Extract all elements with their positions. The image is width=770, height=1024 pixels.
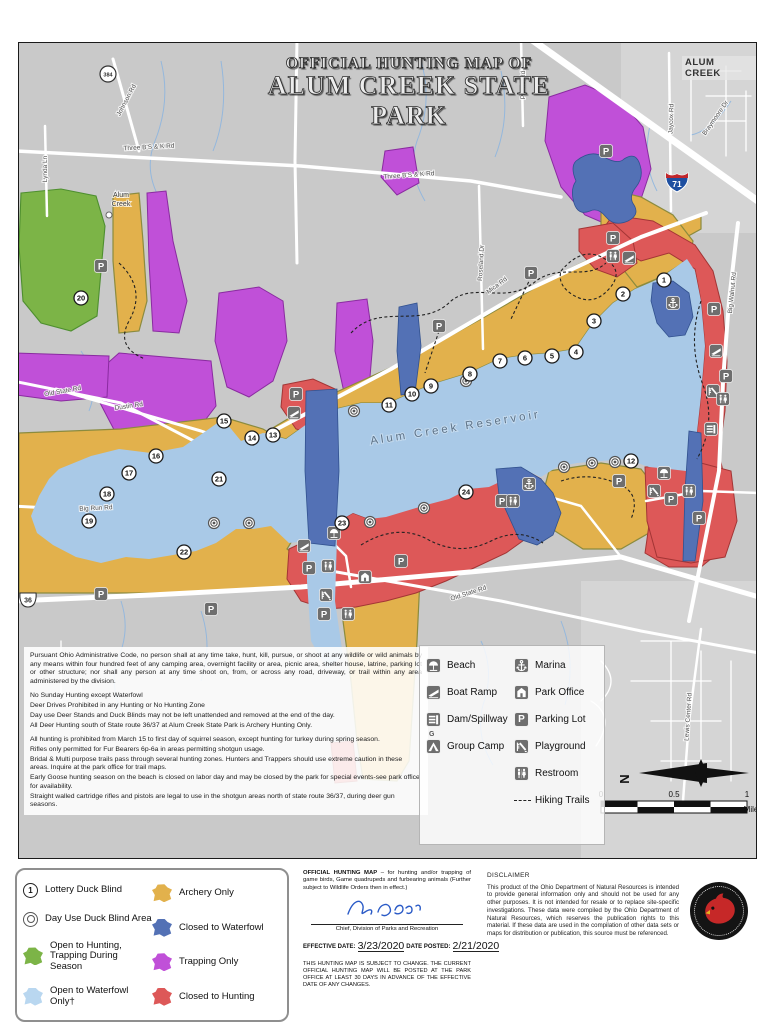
map-legend-item: Hiking Trails xyxy=(514,793,598,808)
signature-ink xyxy=(342,894,432,920)
map-legend-item: GGroup Camp xyxy=(426,739,510,754)
lottery-duck-blind-1: 1 xyxy=(657,273,671,287)
regulation-line: Day use Deer Stands and Duck Blinds may … xyxy=(30,712,422,721)
svg-text:10: 10 xyxy=(408,390,416,399)
regulation-line: All hunting is prohibited from March 15 … xyxy=(30,736,422,745)
odnr-seal xyxy=(684,876,754,946)
day-use-duck-blind xyxy=(244,518,255,529)
zone-legend-label: Lottery Duck Blind xyxy=(45,885,122,896)
restroom-icon xyxy=(607,250,620,263)
playground-icon xyxy=(320,589,333,602)
svg-text:12: 12 xyxy=(627,457,635,466)
town-marker xyxy=(106,212,112,218)
zone-legend-right: Archery OnlyClosed to WaterfowlTrapping … xyxy=(152,876,281,1014)
town-label: Alum xyxy=(113,192,129,199)
zone-legend-label: Archery Only xyxy=(179,888,234,899)
regulation-line: Bridal & Multi purpose trails pass throu… xyxy=(30,756,422,773)
camp-icon: G xyxy=(426,739,441,754)
day-use-duck-blind xyxy=(587,458,598,469)
lottery-duck-blind-23: 23 xyxy=(335,516,349,530)
lottery-duck-blind-18: 18 xyxy=(100,487,114,501)
map-legend-label: Group Camp xyxy=(447,741,504,752)
dam-icon xyxy=(426,712,441,727)
marina-icon xyxy=(514,658,529,673)
north-letter: N xyxy=(617,774,632,783)
zone-legend-label: Closed to Hunting xyxy=(179,992,255,1003)
lottery-duck-blind-11: 11 xyxy=(382,398,396,412)
page: Johnson RdThree B'S & K RdThree B'S & K … xyxy=(0,0,770,1024)
date-row: EFFECTIVE DATE: 3/23/2020 DATE POSTED: 2… xyxy=(303,941,471,952)
lottery-blind-icon: 1 xyxy=(23,883,38,898)
parking-lot-icon: P xyxy=(395,555,408,568)
lottery-duck-blind-17: 17 xyxy=(122,466,136,480)
zone-legend-item: Day Use Duck Blind Area xyxy=(23,912,152,927)
svg-text:P: P xyxy=(293,389,300,400)
regulation-line: No Sunday Hunting except Waterfowl xyxy=(30,692,422,701)
svg-text:P: P xyxy=(208,604,215,615)
zone-swatch xyxy=(23,988,43,1006)
disclaimer-block: DISCLAIMER This product of the Ohio Depa… xyxy=(487,872,679,938)
restroom-icon xyxy=(717,393,730,406)
zone-legend-item: Trapping Only xyxy=(152,953,281,971)
subject-to-change-note: THIS HUNTING MAP IS SUBJECT TO CHANGE. T… xyxy=(303,961,471,990)
corner-label: ALUM CREEK xyxy=(682,56,756,80)
lottery-duck-blind-12: 12 xyxy=(624,454,638,468)
svg-text:P: P xyxy=(528,268,535,279)
svg-text:P: P xyxy=(436,321,443,332)
zone-legend-item: Open to Waterfowl Only† xyxy=(23,986,152,1007)
effective-date-label: EFFECTIVE DATE: xyxy=(303,944,356,951)
office-icon xyxy=(514,685,529,700)
svg-text:19: 19 xyxy=(85,517,93,526)
lottery-duck-blind-5: 5 xyxy=(545,349,559,363)
lottery-duck-blind-6: 6 xyxy=(518,351,532,365)
filing-intro: OFFICIAL HUNTING MAP – for hunting and/o… xyxy=(303,870,471,892)
parking-lot-icon: P xyxy=(95,588,108,601)
restroom-icon xyxy=(683,485,696,498)
lottery-duck-blind-24: 24 xyxy=(459,485,473,499)
svg-text:P: P xyxy=(723,371,730,382)
svg-text:P: P xyxy=(610,233,617,244)
zone-swatch xyxy=(152,953,172,971)
map-legend-item: Boat Ramp xyxy=(426,685,510,700)
road-label: Lynda Ln xyxy=(42,155,49,182)
boat-ramp-icon xyxy=(623,252,636,265)
map-legend-label: Dam/Spillway xyxy=(447,714,508,725)
parking-lot-icon: P xyxy=(600,145,613,158)
regulations-group1: No Sunday Hunting except WaterfowlDeer D… xyxy=(30,692,422,730)
town-label: Creek xyxy=(112,201,131,208)
zone-legend-label: Trapping Only xyxy=(179,957,238,968)
filing-intro-bold: OFFICIAL HUNTING MAP xyxy=(303,870,377,876)
date-posted-label: DATE POSTED: xyxy=(406,944,450,951)
map-legend-item: Playground xyxy=(514,739,598,754)
lottery-duck-blind-21: 21 xyxy=(212,472,226,486)
zone-swatch xyxy=(152,988,172,1006)
parking-lot-icon: P xyxy=(95,260,108,273)
map-legend-item: Marina xyxy=(514,658,598,673)
svg-text:22: 22 xyxy=(180,548,188,557)
map-legend-item: Park Office xyxy=(514,685,598,700)
bottom-strip: 1Lottery Duck BlindDay Use Duck Blind Ar… xyxy=(0,860,770,1024)
regulation-line: Rifles only permitted for Fur Bearers 6p… xyxy=(30,746,422,755)
svg-text:P: P xyxy=(98,261,105,272)
svg-text:P: P xyxy=(668,494,675,505)
svg-text:71: 71 xyxy=(672,179,682,189)
svg-text:P: P xyxy=(98,589,105,600)
svg-text:7: 7 xyxy=(498,357,502,366)
disclaimer-title: DISCLAIMER xyxy=(487,872,679,880)
regulation-line: Deer Drives Prohibited in any Hunting or… xyxy=(30,702,422,711)
restroom-icon xyxy=(514,766,529,781)
svg-text:P: P xyxy=(398,556,405,567)
regulations-box: Pursuant Ohio Administrative Code, no pe… xyxy=(24,647,428,815)
svg-text:P: P xyxy=(696,513,703,524)
map-legend-label: Beach xyxy=(447,660,475,671)
svg-text:3: 3 xyxy=(592,317,596,326)
day-use-duck-blind xyxy=(559,462,570,473)
svg-text:9: 9 xyxy=(429,382,433,391)
svg-text:15: 15 xyxy=(220,417,228,426)
svg-text:2: 2 xyxy=(621,290,625,299)
zone-legend-label: Closed to Waterfowl xyxy=(179,923,264,934)
svg-text:1: 1 xyxy=(662,276,666,285)
svg-text:36: 36 xyxy=(24,598,32,605)
map-legend-label: Playground xyxy=(535,741,586,752)
lottery-duck-blind-22: 22 xyxy=(177,545,191,559)
scale-tick: 1 xyxy=(745,790,750,799)
lottery-duck-blind-2: 2 xyxy=(616,287,630,301)
zone-legend-item: Closed to Hunting xyxy=(152,988,281,1006)
map-legend: BeachBoat RampDam/SpillwayGGroup Camp Ma… xyxy=(419,645,605,845)
map-title: OFFICIAL HUNTING MAP OF ALUM CREEK STATE… xyxy=(249,55,569,131)
restroom-icon xyxy=(322,560,335,573)
zone-swatch xyxy=(152,919,172,937)
parking-lot-icon: P xyxy=(290,388,303,401)
lottery-duck-blind-10: 10 xyxy=(405,387,419,401)
parking-lot-icon: P xyxy=(525,267,538,280)
map-legend-item: PParking Lot xyxy=(514,712,598,727)
day-use-duck-blind xyxy=(349,406,360,417)
svg-text:P: P xyxy=(711,304,718,315)
svg-text:6: 6 xyxy=(523,354,527,363)
map-legend-item: Beach xyxy=(426,658,510,673)
svg-text:P: P xyxy=(321,609,328,620)
lottery-duck-blind-9: 9 xyxy=(424,379,438,393)
svg-text:11: 11 xyxy=(385,401,393,410)
map-legend-left: BeachBoat RampDam/SpillwayGGroup Camp xyxy=(424,652,512,838)
trail-icon xyxy=(514,793,529,808)
zone-swatch xyxy=(23,947,43,965)
zone-legend-label: Day Use Duck Blind Area xyxy=(45,914,152,925)
marina-icon xyxy=(523,478,536,491)
boat-ramp-icon xyxy=(710,345,723,358)
svg-text:P: P xyxy=(306,563,313,574)
svg-text:P: P xyxy=(499,496,506,507)
svg-text:18: 18 xyxy=(103,490,111,499)
map-legend-label: Hiking Trails xyxy=(535,795,589,806)
signature-title: Chief, Division of Parks and Recreation xyxy=(311,924,463,934)
boat-ramp-icon xyxy=(426,685,441,700)
parking-lot-icon: P xyxy=(720,370,733,383)
map-title-line2: ALUM CREEK STATE PARK xyxy=(249,71,569,131)
svg-text:20: 20 xyxy=(77,294,85,303)
lottery-duck-blind-14: 14 xyxy=(245,431,259,445)
svg-text:13: 13 xyxy=(269,431,277,440)
zone-legend-label: Open to Waterfowl Only† xyxy=(50,986,152,1007)
road-label: Jaycox Rd xyxy=(667,103,675,134)
zone-legend-label: Open to Hunting, Trapping During Season xyxy=(50,941,152,973)
day-use-blind-icon xyxy=(23,912,38,927)
map-legend-label: Marina xyxy=(535,660,566,671)
lottery-duck-blind-7: 7 xyxy=(493,354,507,368)
office-icon xyxy=(359,571,372,584)
day-use-duck-blind xyxy=(209,518,220,529)
svg-text:21: 21 xyxy=(215,475,223,484)
dam-icon xyxy=(705,423,718,436)
beach-icon xyxy=(658,467,671,480)
zone-legend-item: Archery Only xyxy=(152,884,281,902)
parking-lot-icon: P xyxy=(607,232,620,245)
parking-lot-icon: P xyxy=(205,603,218,616)
day-use-duck-blind xyxy=(610,457,621,468)
date-posted-value: 2/21/2020 xyxy=(453,941,500,952)
svg-text:5: 5 xyxy=(550,352,554,361)
svg-text:17: 17 xyxy=(125,469,133,478)
day-use-duck-blind xyxy=(419,503,430,514)
map-legend-item: Restroom xyxy=(514,766,598,781)
svg-text:14: 14 xyxy=(248,434,257,443)
hunting-map: Johnson RdThree B'S & K RdThree B'S & K … xyxy=(18,42,757,859)
svg-text:P: P xyxy=(603,146,610,157)
regulation-line: All Deer Hunting south of State route 36… xyxy=(30,722,422,731)
lottery-duck-blind-4: 4 xyxy=(569,345,583,359)
lottery-duck-blind-8: 8 xyxy=(463,367,477,381)
cardinal-icon xyxy=(697,889,741,933)
zone-legend-item: Closed to Waterfowl xyxy=(152,919,281,937)
lottery-duck-blind-20: 20 xyxy=(74,291,88,305)
zone-swatch xyxy=(152,884,172,902)
map-legend-label: Park Office xyxy=(535,687,584,698)
day-use-duck-blind xyxy=(365,517,376,528)
zone-legend-item: 1Lottery Duck Blind xyxy=(23,883,152,898)
playground-icon xyxy=(514,739,529,754)
boat-ramp-icon xyxy=(288,407,301,420)
effective-date-value: 3/23/2020 xyxy=(358,941,405,952)
map-legend-label: Restroom xyxy=(535,768,578,779)
regulations-group2: All hunting is prohibited from March 15 … xyxy=(30,736,422,810)
regulation-line: Straight walled cartridge rifles and pis… xyxy=(30,793,422,810)
regulations-paragraph: Pursuant Ohio Administrative Code, no pe… xyxy=(30,652,422,686)
parking-lot-icon: P xyxy=(693,512,706,525)
restroom-icon xyxy=(342,608,355,621)
map-legend-label: Parking Lot xyxy=(535,714,586,725)
us-36-shield: 36 xyxy=(20,593,36,607)
restroom-icon xyxy=(507,495,520,508)
lottery-duck-blind-15: 15 xyxy=(217,414,231,428)
svg-text:384: 384 xyxy=(103,73,113,79)
svg-text:23: 23 xyxy=(338,519,346,528)
map-legend-label: Boat Ramp xyxy=(447,687,497,698)
boat-ramp-icon xyxy=(298,540,311,553)
svg-text:16: 16 xyxy=(152,452,160,461)
lottery-duck-blind-3: 3 xyxy=(587,314,601,328)
svg-text:P: P xyxy=(616,476,623,487)
map-legend-right: MarinaPark OfficePParking LotPlaygroundR… xyxy=(512,652,600,838)
signature xyxy=(303,894,471,923)
disclaimer-text: This product of the Ohio Department of N… xyxy=(487,884,679,938)
lottery-duck-blind-13: 13 xyxy=(266,428,280,442)
svg-text:24: 24 xyxy=(462,488,471,497)
svg-text:8: 8 xyxy=(468,370,472,379)
filing-block: OFFICIAL HUNTING MAP – for hunting and/o… xyxy=(303,870,471,989)
parking-lot-icon: P xyxy=(613,475,626,488)
parking-lot-icon: P xyxy=(708,303,721,316)
zone-legend-left: 1Lottery Duck BlindDay Use Duck Blind Ar… xyxy=(23,876,152,1014)
map-legend-item: Dam/Spillway xyxy=(426,712,510,727)
scale-tick: 0.5 xyxy=(668,790,680,799)
marina-icon xyxy=(667,297,680,310)
parking-lot-icon: P xyxy=(433,320,446,333)
parking-lot-icon: P xyxy=(318,608,331,621)
scale-unit: Miles xyxy=(744,805,756,814)
regulation-line: Early Goose hunting season on the beach … xyxy=(30,774,422,791)
zone-legend-item: Open to Hunting, Trapping During Season xyxy=(23,941,152,973)
lottery-duck-blind-19: 19 xyxy=(82,514,96,528)
parking-lot-icon: P xyxy=(665,493,678,506)
zone-legend-box: 1Lottery Duck BlindDay Use Duck Blind Ar… xyxy=(15,868,289,1022)
zone-open-hunting xyxy=(19,189,105,331)
parking-lot-icon: P xyxy=(303,562,316,575)
parking-icon: P xyxy=(514,712,529,727)
beach-icon xyxy=(426,658,441,673)
playground-icon xyxy=(648,485,661,498)
lottery-duck-blind-16: 16 xyxy=(149,449,163,463)
